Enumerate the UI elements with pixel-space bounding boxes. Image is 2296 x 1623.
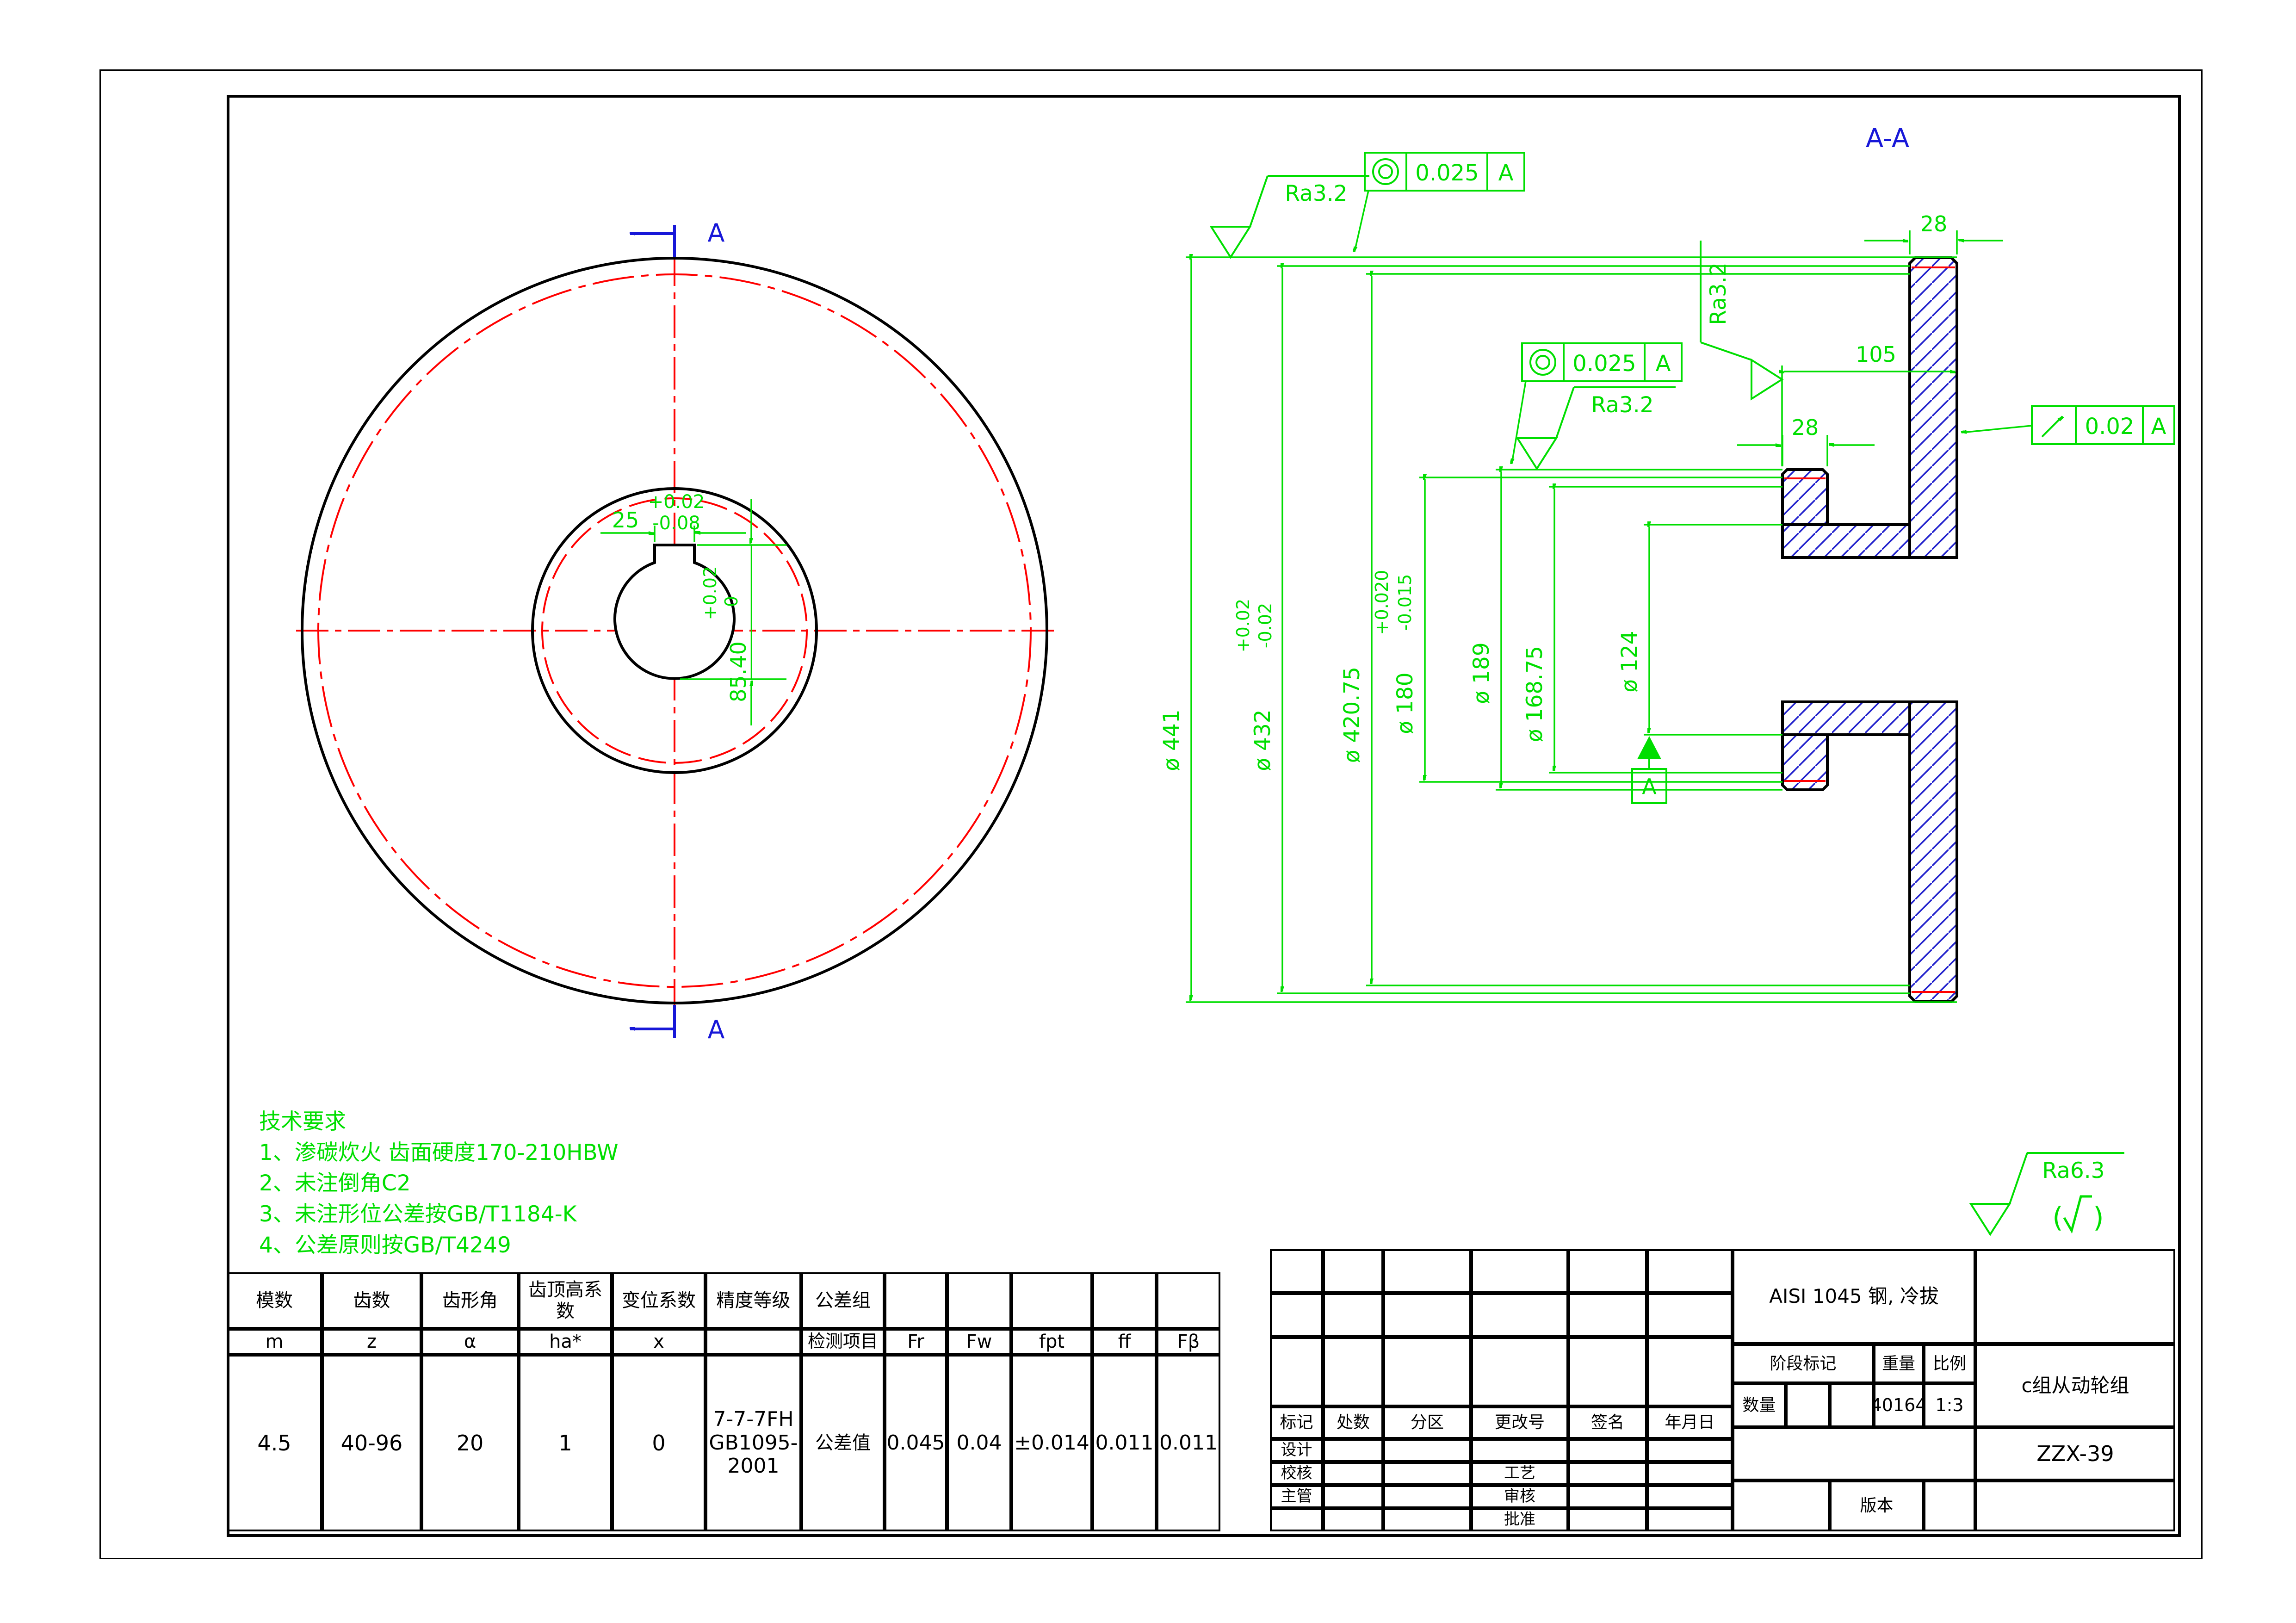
gear-parameter-table: 模数 齿数 齿形角 齿顶高系数 变位系数 精度等级 公差组 m z α ha* … [227,1272,1220,1531]
sym-ha: ha* [519,1329,612,1355]
tol-frame-1-value: 0.025 [1415,160,1479,186]
tech-req-4: 4、公差原则按GB/T4249 [259,1230,619,1261]
material: AISI 1045 钢, 冷拔 [1733,1249,1975,1344]
section-label-bottom: A [708,1015,725,1044]
blank-cell [1830,1383,1874,1427]
surface-mark-3: Ra3.2 [1517,387,1676,469]
qty-label: 数量 [1733,1383,1786,1427]
keyway-width-tol-up: +0.02 [648,491,705,513]
sign-cell [1383,1462,1471,1485]
tech-requirements: 技术要求 1、渗碳炊火 齿面硬度170-210HBW 2、未注倒角C2 3、未注… [259,1107,619,1261]
drawing-sheet: 25 +0.02 -0.08 85.40 +0.02 0 A A [0,0,2296,1623]
val-fpt: ±0.014 [1011,1355,1092,1531]
hdr-blank-3 [1011,1272,1092,1329]
front-view: 25 +0.02 -0.08 85.40 +0.02 0 A A [296,218,1057,1044]
dim-124: ø 124 [1617,631,1642,692]
rev-cell [1647,1293,1733,1337]
blank-cell [1975,1481,2175,1531]
sign-cell [1568,1485,1647,1508]
surface-mark-1-label: Ra3.2 [1285,181,1347,206]
proc-approve: 批准 [1471,1508,1568,1531]
rev-cell [1471,1249,1568,1293]
blank-cell [1924,1481,1975,1531]
val-ff: 0.011 [1092,1355,1157,1531]
rim-lower [1910,702,1957,1002]
hdr-addendum: 齿顶高系数 [519,1272,612,1329]
tol-frame-1-datum: A [1498,160,1514,186]
hdr-precision: 精度等级 [706,1272,801,1329]
rev-cell [1471,1337,1568,1406]
surface-mark-3-label: Ra3.2 [1591,392,1653,418]
hdr-angle: 齿形角 [421,1272,519,1329]
sym-x: x [612,1329,706,1355]
dim-180-dn: -0.015 [1395,574,1415,631]
runout-icon [2042,416,2062,437]
tol-frame-2-datum: A [1656,351,1671,377]
dim-168: ø 168.75 [1522,646,1547,742]
rev-hdr-count: 处数 [1323,1406,1383,1439]
val-module: 4.5 [227,1355,322,1531]
blank-cell [1733,1481,1830,1531]
tol-frame-1: 0.025 A [1355,153,1524,252]
rev-cell [1383,1337,1471,1406]
section-view: A-A [1159,124,2174,1002]
sign-cell [1383,1508,1471,1531]
section-view-title: A-A [1866,124,1909,154]
dim-180: ø 180 [1392,672,1418,734]
sign-check: 校核 [1270,1462,1323,1485]
val-fr: 0.045 [885,1355,947,1531]
paren-open: ( [2052,1202,2063,1234]
sign-cell [1323,1462,1383,1485]
drawing-number: ZZX-39 [1975,1427,2175,1481]
hdr-shift: 变位系数 [612,1272,706,1329]
val-angle: 20 [421,1355,519,1531]
rev-cell [1323,1337,1383,1406]
sign-cell [1323,1508,1383,1531]
sym-z: z [322,1329,421,1355]
hdr-blank-5 [1157,1272,1220,1329]
val-addendum: 1 [519,1355,612,1531]
rev-cell [1568,1337,1647,1406]
rev-cell [1568,1293,1647,1337]
dim-189: ø 189 [1469,642,1494,704]
rev-cell [1568,1249,1647,1293]
dim-420: ø 420.75 [1339,667,1365,763]
sym-blank [706,1329,801,1355]
datum-a-label: A [1642,774,1657,799]
runout-datum: A [2151,414,2166,440]
dim-432-dn: -0.02 [1255,603,1275,648]
rev-cell [1647,1249,1733,1293]
rev-cell [1471,1293,1568,1337]
rev-hdr-mark: 标记 [1270,1406,1323,1439]
keyway-width-tol-dn: -0.08 [652,513,700,534]
sym-m: m [227,1329,322,1355]
sym-ff: ff [1092,1329,1157,1355]
extension-lines [1186,257,1957,1002]
sign-cell [1323,1439,1383,1462]
rev-cell [1323,1249,1383,1293]
general-surface-value: Ra6.3 [2042,1158,2104,1183]
hdr-tolgroup: 公差组 [801,1272,885,1329]
sign-cell [1647,1485,1733,1508]
blank-cell [1975,1249,2175,1344]
sign-cell [1471,1439,1568,1462]
sign-cell [1383,1439,1471,1462]
section-solids [1782,258,1957,1002]
concentricity-icon [1530,350,1555,375]
sign-cell [1647,1508,1733,1531]
rev-cell [1323,1293,1383,1337]
surface-mark-1: Ra3.2 [1211,176,1369,257]
sign-cell [1270,1508,1323,1531]
sign-cell [1323,1485,1383,1508]
rev-cell [1383,1293,1471,1337]
title-block: 标记 处数 分区 更改号 签名 年月日 设计 校核 工艺 主管 审核 批准 AI… [1270,1249,2175,1531]
sign-cell [1383,1485,1471,1508]
tol-frame-2-value: 0.025 [1572,351,1636,377]
rev-hdr-changeno: 更改号 [1471,1406,1568,1439]
rev-cell [1270,1337,1323,1406]
sign-cell [1568,1462,1647,1485]
hdr-blank-4 [1092,1272,1157,1329]
stage-label: 阶段标记 [1733,1344,1874,1383]
tech-req-2: 2、未注倒角C2 [259,1168,619,1199]
version-label: 版本 [1830,1481,1924,1531]
total-width: 105 [1856,342,1896,367]
concentricity-icon [1373,159,1398,184]
section-label-top: A [708,218,725,248]
dim-432: ø 432 [1250,709,1275,771]
rev-cell [1647,1337,1733,1406]
blank-cell [1786,1383,1830,1427]
sym-fw: Fw [947,1329,1011,1355]
sym-fr: Fr [885,1329,947,1355]
sym-inspection: 检测项目 [801,1329,885,1355]
sign-cell [1647,1462,1733,1485]
part-name: c组从动轮组 [1975,1344,2175,1427]
rim-upper [1910,258,1957,558]
hdr-module: 模数 [227,1272,322,1329]
paren-close: ) [2093,1202,2104,1234]
datum-a: A [1632,737,1666,803]
weight-label: 重量 [1874,1344,1924,1383]
sign-design: 设计 [1270,1439,1323,1462]
hub-width: 28 [1792,415,1819,440]
keyway-width-value: 25 [612,508,639,533]
sleeve-lower [1782,702,1910,735]
diameter-labels: ø 441 ø 432 +0.02 -0.02 ø 420.75 ø 180 +… [1159,570,1642,771]
check-icon [2064,1196,2092,1231]
keyway-depth-value: 85.40 [726,641,751,702]
rim-width: 28 [1920,211,1948,236]
rev-hdr-sign: 签名 [1568,1406,1647,1439]
rev-hdr-zone: 分区 [1383,1406,1471,1439]
general-surface-note: Ra6.3 ( ) [1971,1153,2124,1234]
sym-alpha: α [421,1329,519,1355]
blank-cell [1733,1427,1975,1481]
rev-cell [1270,1249,1323,1293]
sign-supervisor: 主管 [1270,1485,1323,1508]
runout-value: 0.02 [2085,414,2135,440]
surface-mark-2: Ra3.2 [1701,241,1782,399]
rev-cell [1270,1293,1323,1337]
val-fbeta: 0.011 [1157,1355,1220,1531]
tech-req-title: 技术要求 [259,1107,619,1138]
tech-req-3: 3、未注形位公差按GB/T1184-K [259,1199,619,1230]
val-shift: 0 [612,1355,706,1531]
tech-req-1: 1、渗碳炊火 齿面硬度170-210HBW [259,1138,619,1169]
sym-fbeta: Fβ [1157,1329,1220,1355]
proc-craft: 工艺 [1471,1462,1568,1485]
hdr-blank-2 [947,1272,1011,1329]
keyway-depth-tol-dn: 0 [721,596,742,607]
sym-fpt: fpt [1011,1329,1092,1355]
scale-label: 比例 [1924,1344,1975,1383]
val-fw: 0.04 [947,1355,1011,1531]
rev-hdr-date: 年月日 [1647,1406,1733,1439]
rev-cell [1383,1249,1471,1293]
val-precision: 7-7-7FH GB1095- 2001 [706,1355,801,1531]
val-teeth: 40-96 [322,1355,421,1531]
sign-cell [1568,1439,1647,1462]
sleeve-upper [1782,525,1910,558]
scale-value: 1:3 [1924,1383,1975,1427]
hdr-blank-1 [885,1272,947,1329]
sign-cell [1647,1439,1733,1462]
hdr-teeth: 齿数 [322,1272,421,1329]
tol-frame-runout: 0.02 A [1962,406,2174,444]
dim-441: ø 441 [1159,709,1184,771]
keyway-depth-tol-up: +0.02 [700,566,720,620]
weight-value: 40164 [1874,1383,1924,1427]
surface-mark-2-label: Ra3.2 [1706,262,1731,325]
dim-180-up: +0.020 [1372,570,1392,635]
dim-432-up: +0.02 [1233,599,1253,652]
proc-audit: 审核 [1471,1485,1568,1508]
sign-cell [1568,1508,1647,1531]
val-tollabel: 公差值 [801,1355,885,1531]
